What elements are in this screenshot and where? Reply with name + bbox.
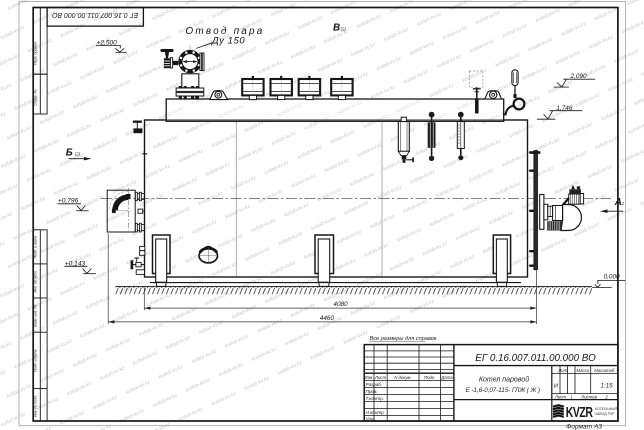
svg-text:Разраб.: Разраб. <box>366 382 383 387</box>
svg-text:Взам. инв. №: Взам. инв. № <box>34 305 38 327</box>
svg-text:Масштаб: Масштаб <box>594 368 615 373</box>
svg-text:ЗАВОД РЗР: ЗАВОД РЗР <box>595 412 615 416</box>
svg-text:Подп. и дата: Подп. и дата <box>34 350 38 373</box>
svg-text:KVZR: KVZR <box>566 404 593 420</box>
svg-text:Инв. № дубл.: Инв. № дубл. <box>34 270 38 292</box>
svg-text:Все размеры для справок: Все размеры для справок <box>370 336 437 342</box>
svg-text:(2): (2) <box>75 152 81 157</box>
svg-text:А: А <box>614 197 622 208</box>
svg-text:Н.контр.: Н.контр. <box>366 410 385 415</box>
svg-text:Ду 150: Ду 150 <box>211 35 245 46</box>
svg-text:N докум.: N докум. <box>394 375 411 380</box>
svg-text:Масса: Масса <box>576 368 589 373</box>
svg-text:КОТЕЛЬНЫЙ: КОТЕЛЬНЫЙ <box>595 407 618 411</box>
svg-text:Изм.: Изм. <box>364 375 373 380</box>
svg-text:Пров.: Пров. <box>366 389 378 394</box>
svg-text:Перв. примен.: Перв. примен. <box>34 41 38 65</box>
svg-text:Инв. № подл.: Инв. № подл. <box>34 395 38 417</box>
svg-text:Листов: Листов <box>580 395 597 400</box>
svg-text:Лит.: Лит. <box>557 368 568 373</box>
svg-text:4460: 4460 <box>320 315 335 322</box>
svg-text:Утв.: Утв. <box>366 416 376 421</box>
svg-text:1:15: 1:15 <box>600 383 613 390</box>
svg-text:Формат А3: Формат А3 <box>566 424 602 430</box>
svg-text:Котел паровой: Котел паровой <box>479 375 529 383</box>
svg-text:ЕГ 0.16.007.011.00.000 ВО: ЕГ 0.16.007.011.00.000 ВО <box>475 353 596 364</box>
svg-text:ЕГ 0.16.007.011.00.000 ВО: ЕГ 0.16.007.011.00.000 ВО <box>52 11 139 18</box>
svg-text:Справ. №: Справ. № <box>34 90 38 106</box>
svg-text:Дата: Дата <box>440 375 453 380</box>
svg-text:Лист: Лист <box>374 375 386 380</box>
svg-text:Подп.: Подп. <box>424 375 435 380</box>
svg-text:Е -1,6-0,07-115- ГЛЖ ( Ж ): Е -1,6-0,07-115- ГЛЖ ( Ж ) <box>466 387 540 394</box>
svg-text:4080: 4080 <box>333 301 348 308</box>
svg-text:Б: Б <box>66 148 73 159</box>
svg-text:Подп. и дата: Подп. и дата <box>34 236 38 259</box>
svg-text:2,090: 2,090 <box>570 73 587 80</box>
svg-text:(2): (2) <box>341 27 347 32</box>
svg-text:Лист: Лист <box>554 395 566 400</box>
svg-text:В: В <box>333 23 340 34</box>
svg-text:0,000: 0,000 <box>604 274 620 281</box>
svg-text:Т.контр.: Т.контр. <box>366 396 385 401</box>
